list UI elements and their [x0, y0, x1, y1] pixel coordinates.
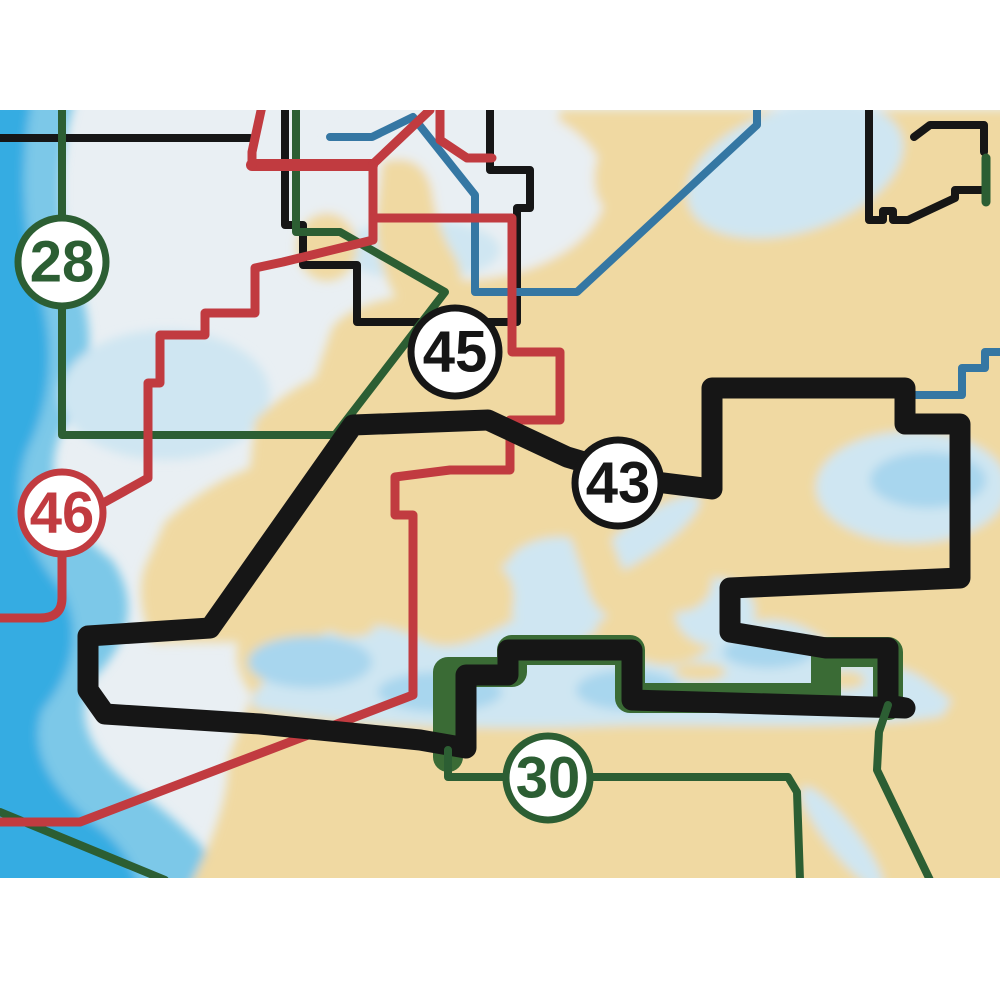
- region-badge-30-label: 30: [516, 746, 581, 811]
- corsica: [488, 516, 516, 564]
- region-badge-30[interactable]: 30: [506, 736, 590, 820]
- sardinia: [480, 568, 514, 628]
- region-badge-43[interactable]: 43: [575, 440, 661, 526]
- region-badge-45-label: 45: [423, 320, 488, 385]
- bay-of-biscay: [60, 330, 270, 460]
- chart-map-screenshot: 28 45 46 43 30: [0, 0, 1000, 1000]
- region-badge-45[interactable]: 45: [411, 308, 499, 396]
- map-area: [0, 76, 1000, 897]
- region-badge-46-label: 46: [30, 481, 95, 546]
- region-badge-28[interactable]: 28: [18, 218, 106, 306]
- region-badge-46[interactable]: 46: [21, 472, 103, 554]
- region-badge-28-label: 28: [30, 230, 95, 295]
- greece: [644, 552, 712, 612]
- chart-coverage-map: 28 45 46 43 30: [0, 0, 1000, 1000]
- crete: [674, 663, 726, 681]
- denmark: [594, 148, 622, 208]
- west-med-patch: [248, 636, 372, 688]
- region-badge-43-label: 43: [586, 451, 651, 516]
- balearic-islands: [330, 619, 374, 637]
